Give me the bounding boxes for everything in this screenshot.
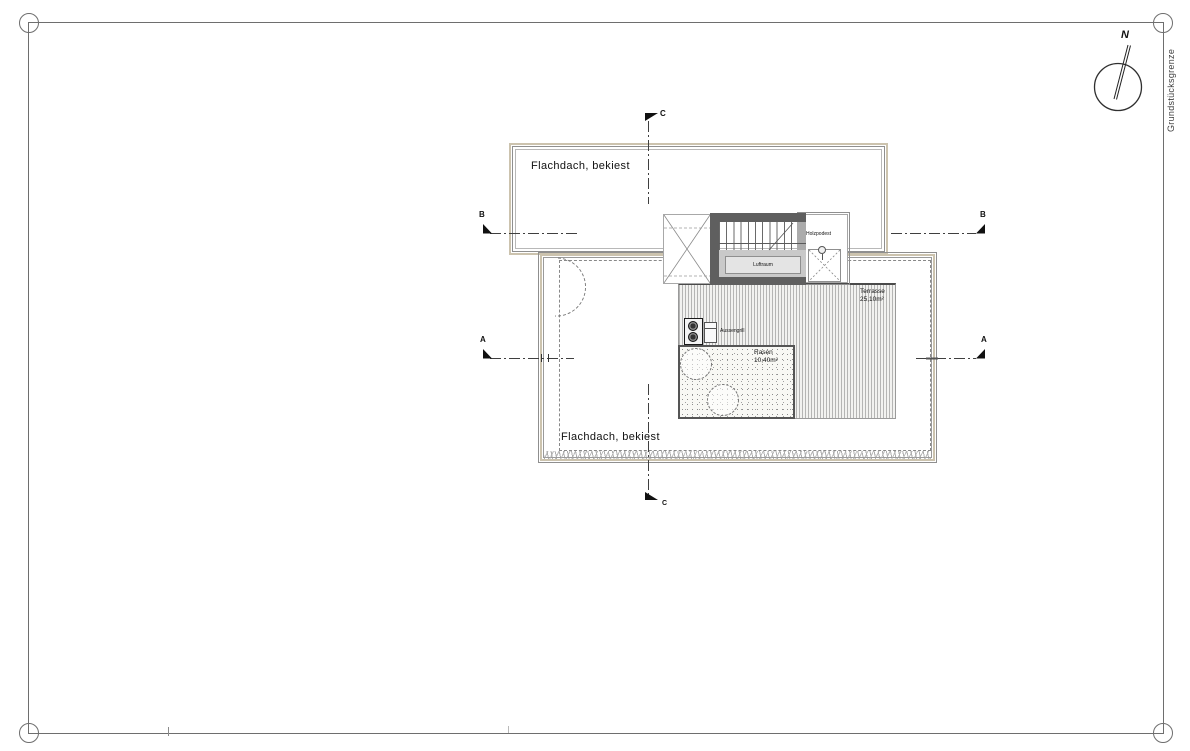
- boundary-tick: [168, 727, 169, 736]
- boundary-corner-marker-icon: [1153, 723, 1173, 743]
- upper-roof-label: Flachdach, bekiest: [531, 160, 630, 172]
- section-letter-a-right: A: [981, 335, 987, 344]
- air-space: Luftraum: [725, 256, 801, 274]
- boundary-corner-marker-icon: [19, 723, 39, 743]
- skylight-cross-icon: [664, 215, 710, 283]
- north-label: N: [1121, 29, 1129, 41]
- grill-burner-icon: [688, 332, 698, 342]
- stair-wall-bottom: [710, 276, 806, 285]
- section-letter-a-left: A: [480, 335, 486, 344]
- stair-walkline: [719, 243, 806, 244]
- vent-stem: [822, 254, 823, 260]
- stair-wall-top: [710, 213, 806, 222]
- lawn-label: Rasen: [754, 349, 778, 357]
- grill-label: Aussengrill: [720, 328, 744, 334]
- section-letter-b-left: B: [479, 210, 485, 219]
- north-arrow-icon: [1088, 28, 1158, 118]
- boundary-corner-marker-icon: [19, 13, 39, 33]
- grill-side-table: [704, 322, 717, 343]
- section-letter-c-bottom: C: [662, 500, 667, 507]
- skylight-panel: [663, 214, 711, 284]
- vent-icon: [818, 246, 826, 254]
- terrace-area-value: 25,10m²: [860, 296, 885, 304]
- grill-burner-icon: [688, 321, 698, 331]
- lawn-area: Rasen 10,40m²: [678, 345, 795, 419]
- boundary-tick: [508, 726, 509, 733]
- section-letter-c-top: C: [660, 109, 666, 118]
- lawn-area-value: 10,40m²: [754, 357, 778, 365]
- grill-icon: [684, 318, 703, 345]
- section-letter-b-right: B: [980, 210, 986, 219]
- deck-hatch-cross-icon: [809, 250, 840, 281]
- deck-hatch-box: [808, 249, 841, 282]
- stair-treads: [719, 222, 798, 252]
- stair-wall-left: [710, 213, 719, 285]
- lower-roof-label: Flachdach, bekiest: [561, 431, 660, 443]
- gravel-strip: [544, 451, 931, 459]
- wood-deck-label: Holzpodest: [806, 231, 831, 237]
- roof-plan-drawing: Grundstücksgrenze N Flachdach, bekiest F…: [0, 0, 1190, 751]
- terrace-label: Terrasse: [860, 288, 885, 296]
- boundary-label: Grundstücksgrenze: [1166, 32, 1176, 132]
